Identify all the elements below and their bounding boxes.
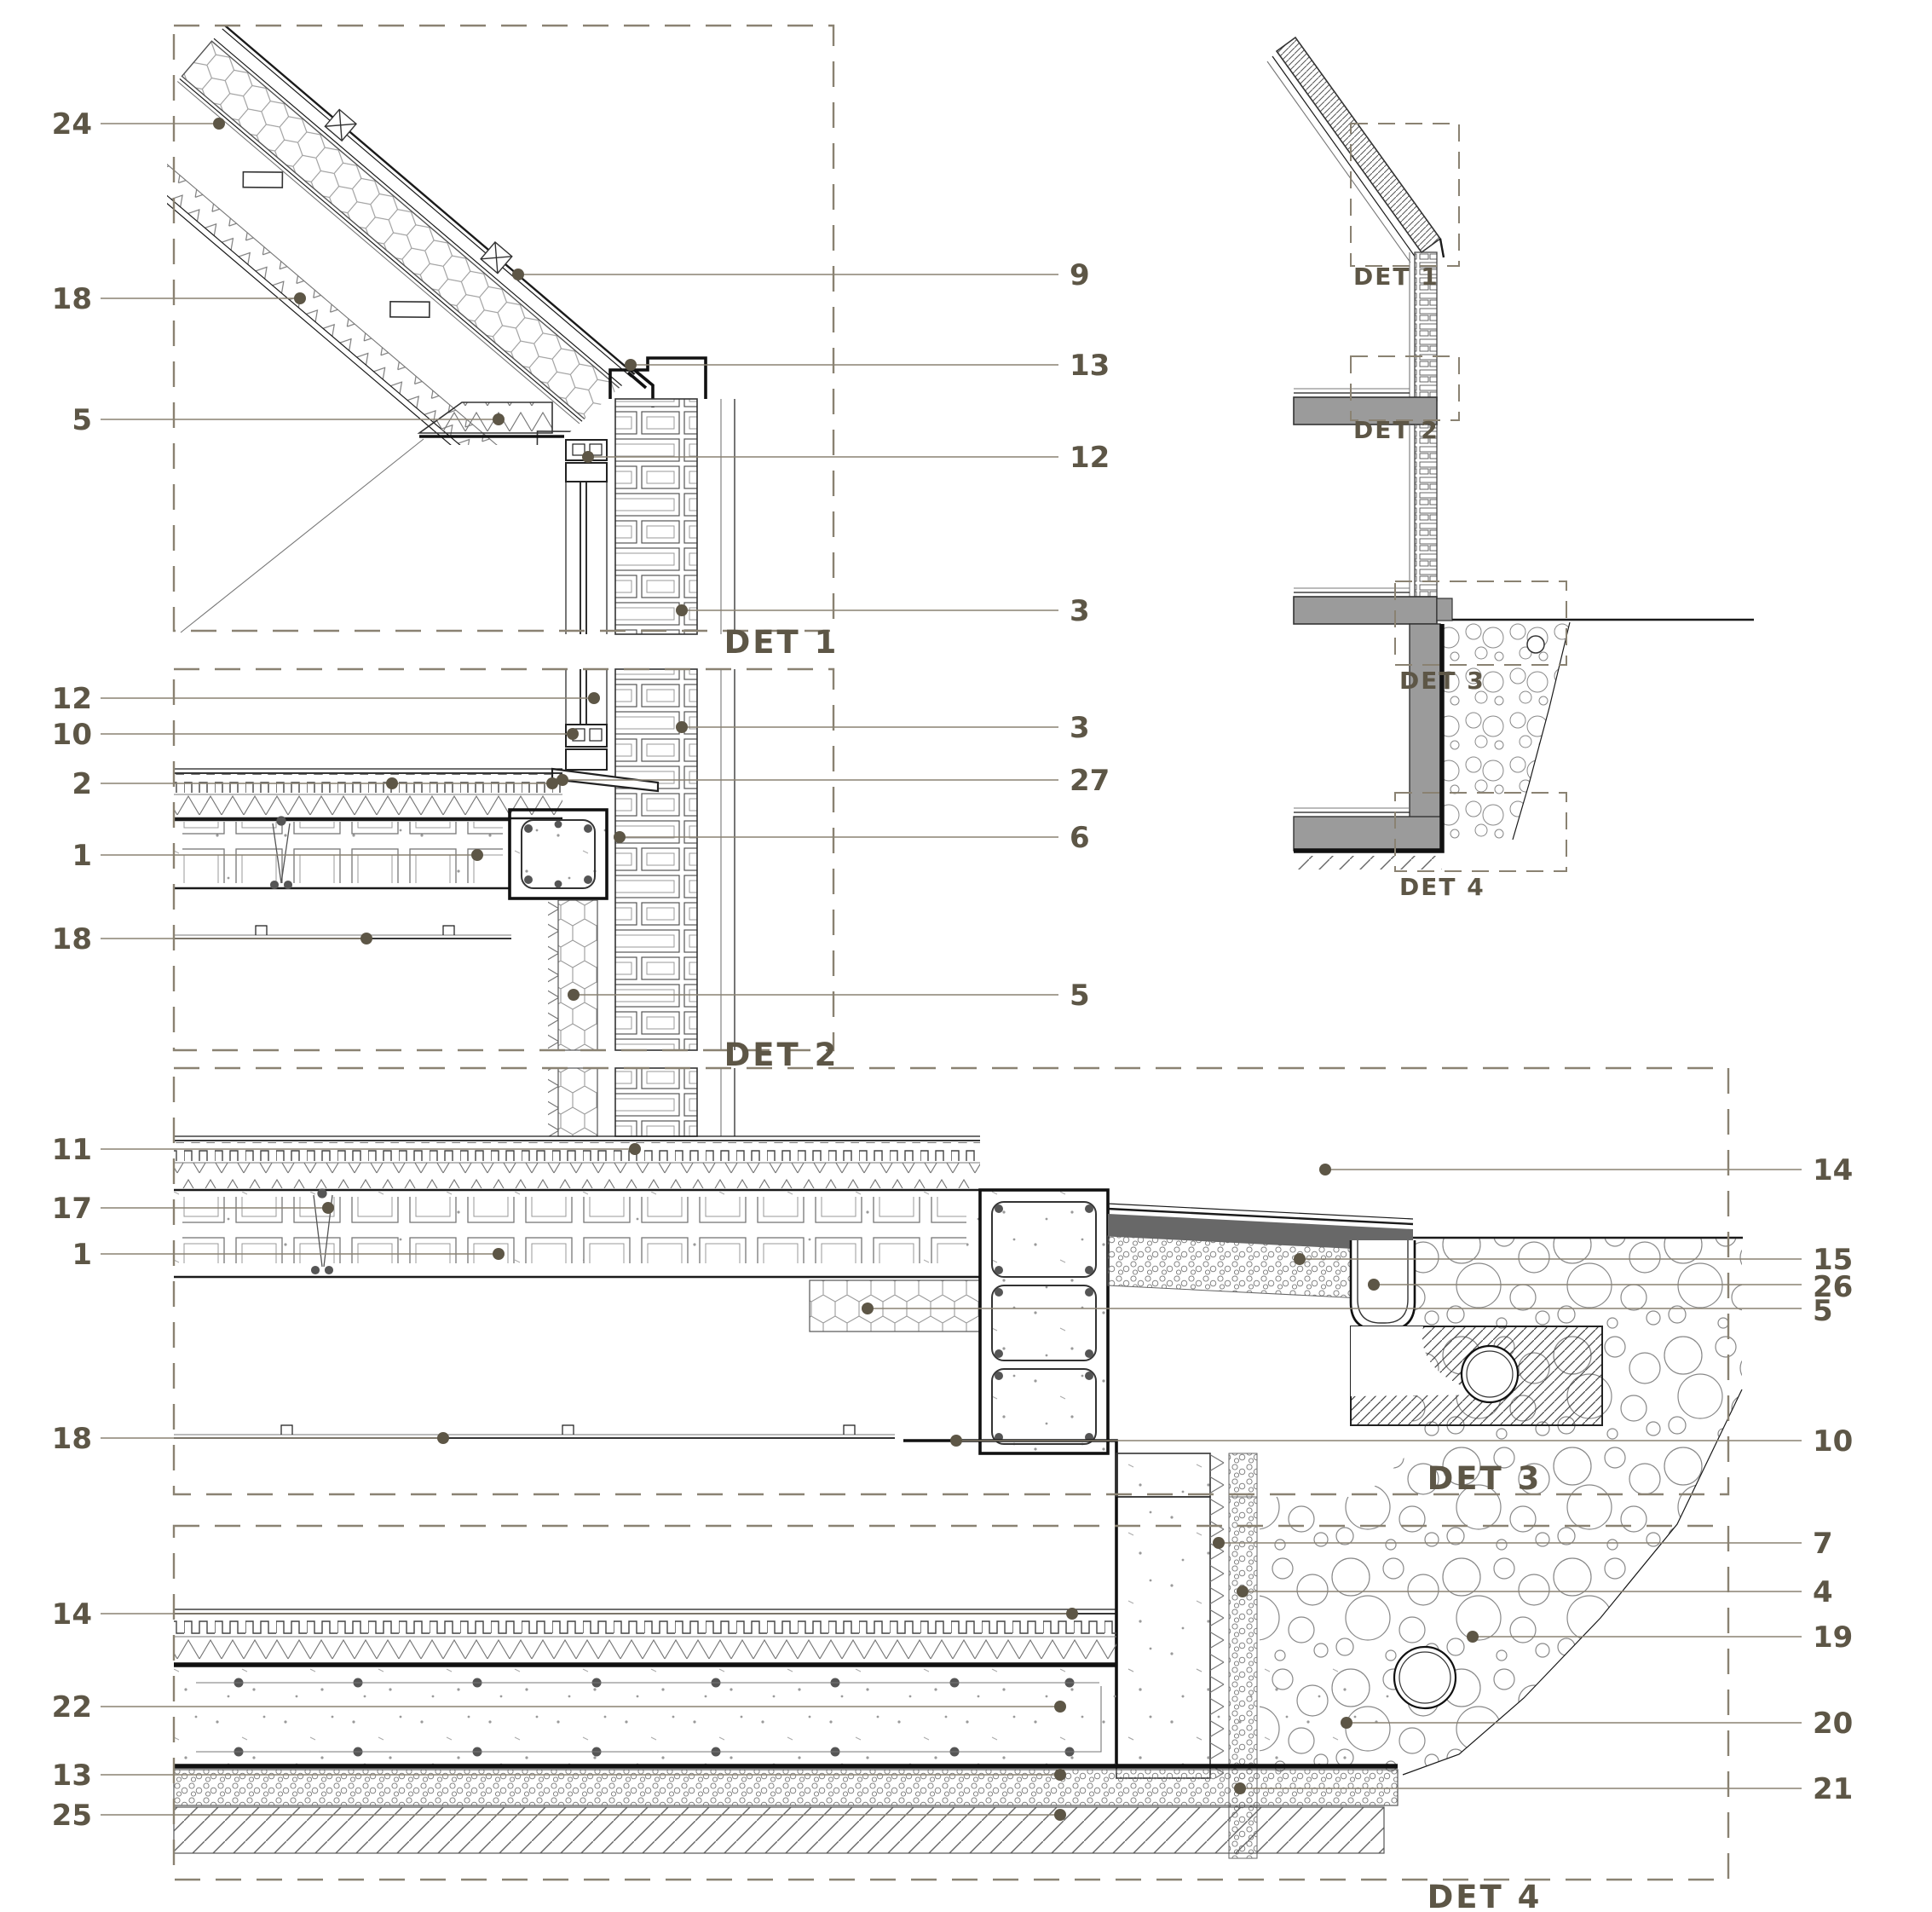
callout-5-det2-label: 5 <box>1070 979 1090 1013</box>
det4-drain-pipe <box>1394 1647 1456 1708</box>
key-blinding <box>1294 856 1442 869</box>
det4-caption: DET 4 <box>1427 1879 1543 1912</box>
det2-glazing <box>566 669 607 725</box>
callout-7-label: 7 <box>1813 1527 1833 1561</box>
det2-hollowcore-voids <box>182 822 503 883</box>
key-ground-slab <box>1294 597 1437 624</box>
det2-perimeter-zigzag <box>548 900 558 1050</box>
callout-1-det3-label: 1 <box>72 1238 92 1272</box>
callout-21-label: 21 <box>1813 1772 1853 1806</box>
callout-14-det4-label: 14 <box>52 1597 92 1632</box>
callout-12-det1-label: 12 <box>1070 441 1110 475</box>
callout-10-det3-label: 10 <box>1813 1424 1853 1459</box>
callout-13-det4-label: 13 <box>52 1759 92 1793</box>
key-threshold <box>1437 598 1452 621</box>
det3-underslab-insulation <box>810 1280 980 1331</box>
det4-screed-corrugated <box>174 1615 1116 1634</box>
key-det2-caption: DET 2 <box>1353 416 1439 444</box>
det3-wall-insulation <box>558 1068 597 1136</box>
callout-18-det2-leader <box>101 933 372 944</box>
callout-9-label: 9 <box>1070 258 1090 292</box>
key-wall-lower <box>1415 425 1437 597</box>
key-drain-pipe <box>1527 636 1544 653</box>
det2-ceiling <box>174 926 511 939</box>
callout-12-det2-leader <box>101 692 600 704</box>
det3-drain-pipe <box>1462 1346 1518 1402</box>
callout-18-det1-label: 18 <box>52 282 92 316</box>
callout-24-leader <box>101 118 225 130</box>
callout-10-det2-leader <box>101 728 579 740</box>
callout-18-det3-leader <box>101 1432 449 1444</box>
det3-caption: DET 3 <box>1427 1460 1543 1497</box>
callout-4-label: 4 <box>1813 1575 1833 1609</box>
callout-5-det1-label: 5 <box>72 403 92 437</box>
callout-17-label: 17 <box>52 1192 92 1226</box>
det3-floor-insulation <box>174 1163 980 1188</box>
det2-drawing <box>174 669 735 1050</box>
key-det3-caption: DET 3 <box>1399 667 1485 695</box>
det3-screed-corrugated <box>174 1142 980 1161</box>
callout-3-det1-leader <box>676 604 1058 616</box>
callout-14-det3-label: 14 <box>1813 1153 1853 1187</box>
key-fascia <box>1440 239 1444 257</box>
callout-6-label: 6 <box>1070 821 1090 855</box>
det1-caption: DET 1 <box>724 624 839 661</box>
key-basement-slab <box>1294 817 1442 851</box>
key-roof <box>1277 38 1440 252</box>
det3-basement-wall <box>1116 1453 1257 1497</box>
callout-3-det2-leader <box>676 721 1058 733</box>
det3-brick-wall <box>615 1068 697 1136</box>
det3-wall-zigzag <box>548 1068 558 1136</box>
callout-10-det2-label: 10 <box>52 718 92 752</box>
callout-27-label: 27 <box>1070 764 1110 798</box>
det2-edge-beam <box>510 810 607 898</box>
callout-22-label: 22 <box>52 1690 92 1724</box>
det4-floor-insulation <box>174 1637 1116 1662</box>
det3-edge-beam <box>980 1190 1108 1453</box>
callout-1-det2-label: 1 <box>72 839 92 873</box>
key-det4-caption: DET 4 <box>1399 873 1485 901</box>
det1-soffit-line <box>181 439 424 633</box>
callout-11-label: 11 <box>52 1133 92 1167</box>
callout-3-det1-label: 3 <box>1070 594 1090 628</box>
callout-5-det3-label: 5 <box>1813 1294 1833 1328</box>
det1-glazing <box>566 482 607 634</box>
callout-24-label: 24 <box>52 107 92 142</box>
det4-blinding-concrete <box>174 1807 1384 1853</box>
callout-9-leader <box>512 269 1058 280</box>
callout-18-det2-label: 18 <box>52 922 92 956</box>
callout-13-det1-label: 13 <box>1070 349 1110 383</box>
callout-18-det1-leader <box>101 292 306 304</box>
callout-20-label: 20 <box>1813 1707 1853 1741</box>
det1-drawing <box>112 18 735 634</box>
callout-25-label: 25 <box>52 1799 92 1833</box>
callout-18-det3-label: 18 <box>52 1422 92 1456</box>
callout-12-det2-label: 12 <box>52 682 92 716</box>
det3-drain-block <box>1351 1326 1602 1425</box>
det2-caption: DET 2 <box>724 1037 839 1073</box>
det1-brick-wall <box>615 399 697 634</box>
callout-19-label: 19 <box>1813 1620 1853 1655</box>
key-det1-caption: DET 1 <box>1353 263 1439 291</box>
callout-3-det2-label: 3 <box>1070 711 1090 745</box>
detail-sheet-drawing: 24 18 5 12 10 2 1 18 11 17 1 18 14 22 13… <box>0 0 1932 1912</box>
det2-floor-insulation <box>174 794 562 818</box>
callout-13-det1-leader <box>625 359 1058 371</box>
key-gravel <box>1442 622 1570 840</box>
det2-perimeter-insulation <box>558 900 597 1050</box>
callout-2-label: 2 <box>72 767 92 801</box>
det3-ceiling <box>174 1425 895 1438</box>
sheet-container: 24 18 5 12 10 2 1 18 11 17 1 18 14 22 13… <box>0 0 1932 1912</box>
key-plan-drawing <box>1267 38 1754 871</box>
